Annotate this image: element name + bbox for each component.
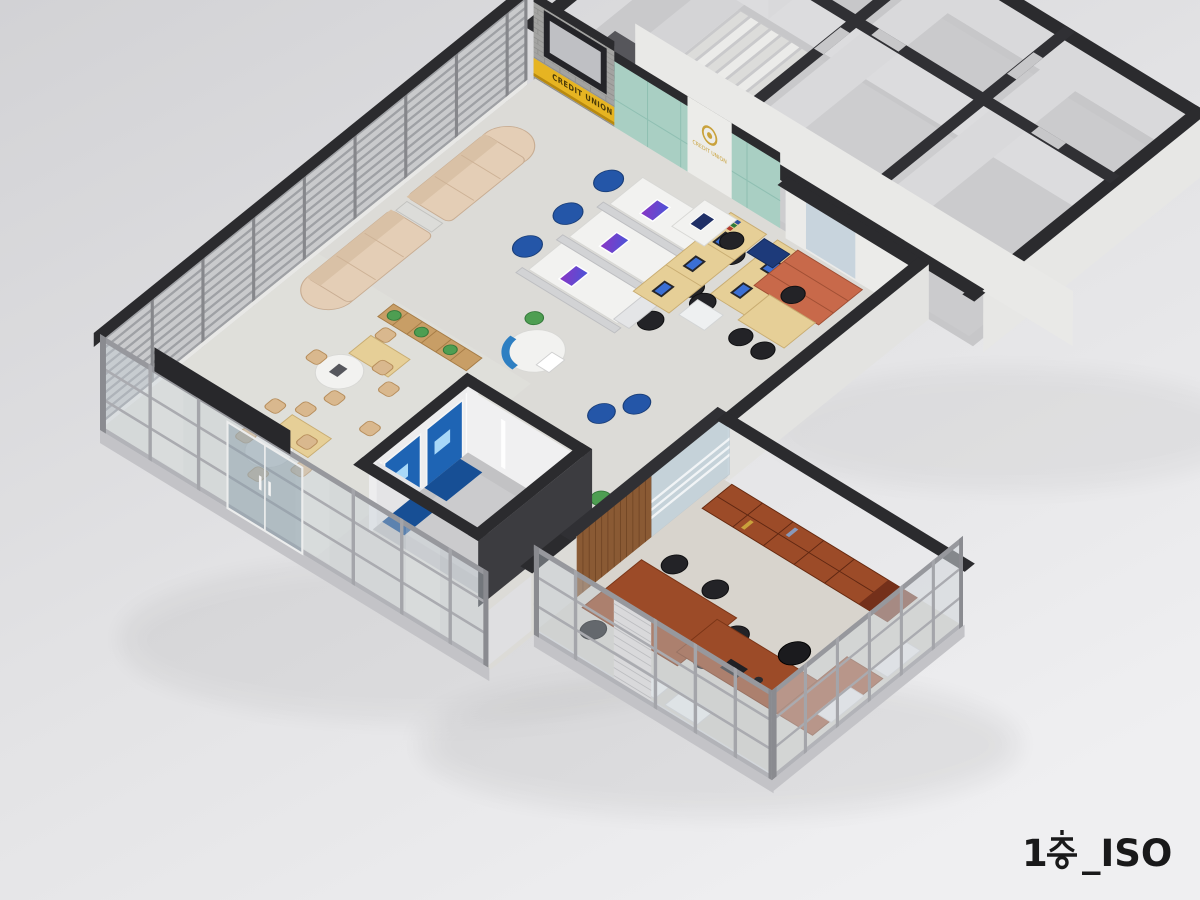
render-canvas: CREDIT UNION CREDIT UNION	[0, 0, 1200, 900]
title-suffix: _ISO	[1082, 832, 1172, 875]
title-prefix: 1	[1022, 832, 1048, 875]
floorplan-render: CREDIT UNION CREDIT UNION	[0, 0, 1200, 900]
